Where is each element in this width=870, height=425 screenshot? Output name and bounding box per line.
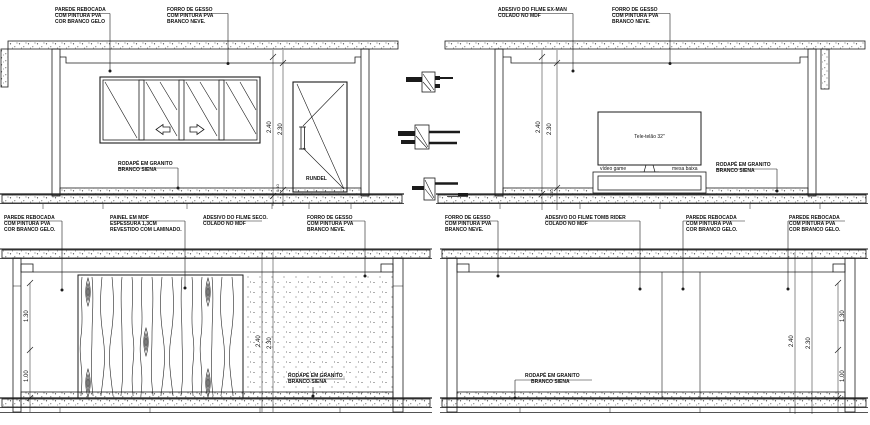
section-detail-1 [406, 72, 453, 92]
label-adesivo-b: ADESIVO DO FILME EX-MAN COLADO NO MDF [498, 7, 567, 19]
baseboard-band [21, 392, 393, 398]
ceiling-line [503, 57, 808, 63]
elevation-b [436, 14, 868, 211]
label-adesivo-d: ADESIVO DO FILME TOMB RIDER COLADO NO MD… [545, 215, 626, 227]
ceiling-step [457, 264, 469, 272]
leader-dot [787, 288, 790, 291]
door-handle [301, 127, 305, 149]
dim-230-b: 2.30 [547, 123, 553, 135]
ceiling-line [60, 57, 361, 63]
wall-stub [821, 49, 829, 89]
floor-slab [438, 195, 866, 203]
elevation-c [0, 221, 432, 413]
label-forro-gesso-a: FORRO DE GESSO COM PINTURA PVA BRANCO NE… [167, 7, 213, 25]
label-parede-rebocada-d2-line3: COR BRANCO GELO. [789, 227, 840, 233]
leader-dot [497, 275, 500, 278]
leader-dot [61, 289, 64, 292]
dim-240-b: 2.40 [536, 121, 542, 133]
label-door-brand: RUNDEL [306, 176, 327, 182]
dim-130-d: 1.30 [840, 310, 846, 322]
ceiling-step [381, 264, 393, 272]
label-rodape-a: RODAPÉ EM GRANITO BRANCO SIENA [118, 161, 173, 173]
label-video-game: vídeo game [600, 166, 626, 172]
leader-dot [776, 190, 779, 193]
section-detail-2 [398, 125, 460, 149]
dim-230-a: 2.30 [278, 123, 284, 135]
label-rodape-d: RODAPÉ EM GRANITO BRANCO SIENA [525, 373, 580, 385]
leader-dot [109, 70, 112, 73]
leader-dot [572, 70, 575, 73]
label-rodape-b: RODAPÉ EM GRANITO BRANCO SIENA [716, 162, 771, 174]
dim-010-b: 0.10 [550, 189, 554, 197]
ceiling-step [833, 264, 845, 272]
wall-joint-lines [662, 272, 700, 398]
dim-130-c: 1.30 [24, 310, 30, 322]
label-parede-rebocada-d1: PAREDE REBOCADA COM PINTURA PVA COR BRAN… [686, 215, 737, 233]
label-forro-gesso-d: FORRO DE GESSO COM PINTURA PVA BRANCO NE… [445, 215, 491, 233]
label-parede-rebocada-c: PAREDE REBOCADA COM PINTURA PVA COR BRAN… [4, 215, 55, 233]
slab-band [445, 41, 865, 49]
label-forro-gesso-b: FORRO DE GESSO COM PINTURA PVA BRANCO NE… [612, 7, 658, 25]
arrow-left-icon [156, 125, 170, 135]
label-mesa-baixa: mesa baixa [672, 166, 698, 172]
label-painel-mdf: PAINEL EM MDF ESPESSURA 1,3CM REVESTIDO … [110, 215, 182, 233]
leader-dot [669, 62, 672, 65]
wall-right [393, 258, 403, 412]
wall-right [808, 49, 816, 196]
floor-ticks [500, 204, 820, 209]
baseboard-band [60, 188, 361, 194]
leader-dot [639, 288, 642, 291]
slab-band [8, 41, 398, 49]
floor-slab [442, 399, 866, 407]
label-forro-gesso-c: FORRO DE GESSO COM PINTURA PVA BRANCO NE… [307, 215, 353, 233]
dim-230-d: 2.30 [806, 337, 812, 349]
wall-left [13, 258, 21, 412]
dim-240-d: 2.40 [789, 335, 795, 347]
leader-dot [177, 187, 180, 190]
label-parede-rebocada-a: PAREDE REBOCADA COM PINTURA PVA COR BRAN… [55, 7, 106, 25]
elevation-a [0, 14, 404, 210]
sliding-window [100, 77, 260, 143]
cad-drawing-sheet: PAREDE REBOCADA COM PINTURA PVA COR BRAN… [0, 0, 870, 425]
floor-slab [2, 195, 402, 203]
dim-100-d: 1.00 [840, 370, 846, 382]
wall-left [447, 258, 457, 412]
wall-left [495, 49, 503, 196]
label-rodape-c: RODAPÉ EM GRANITO BRANCO SIENA [288, 373, 343, 385]
dim-240-a: 2.40 [267, 121, 273, 133]
arrow-right-icon [190, 125, 204, 135]
floor-ticks [43, 204, 351, 209]
wall-stub [1, 49, 8, 87]
label-adesivo-c: ADESIVO DO FILME SECO. COLADO NO MDF [203, 215, 268, 227]
label-tv: Tele-telão 32" [598, 134, 701, 140]
section-details [398, 72, 468, 200]
baseboard-band [457, 392, 845, 398]
slab-band [442, 250, 866, 258]
slab-band [2, 250, 430, 258]
tv-stand [640, 165, 659, 172]
dim-240-c: 2.40 [256, 335, 262, 347]
dim-100-c: 1.00 [24, 370, 30, 382]
ceiling-step [21, 264, 33, 272]
wall-right [845, 258, 855, 412]
leader-dot [227, 62, 230, 65]
floor-slab [2, 399, 430, 407]
label-parede-rebocada-d2: PAREDE REBOCADA COM PINTURA PVA [789, 215, 840, 227]
wall-left [52, 49, 60, 196]
leader-dot [184, 287, 187, 290]
cad-linework [0, 0, 870, 425]
leader-dot [364, 275, 367, 278]
leader-dot [682, 288, 685, 291]
dim-010-a: 0.10 [276, 184, 280, 192]
elevation-d [440, 221, 868, 414]
wall-right [361, 49, 369, 196]
dim-lines [795, 252, 812, 414]
tv-unit [593, 112, 706, 193]
dim-230-c: 2.30 [267, 337, 273, 349]
